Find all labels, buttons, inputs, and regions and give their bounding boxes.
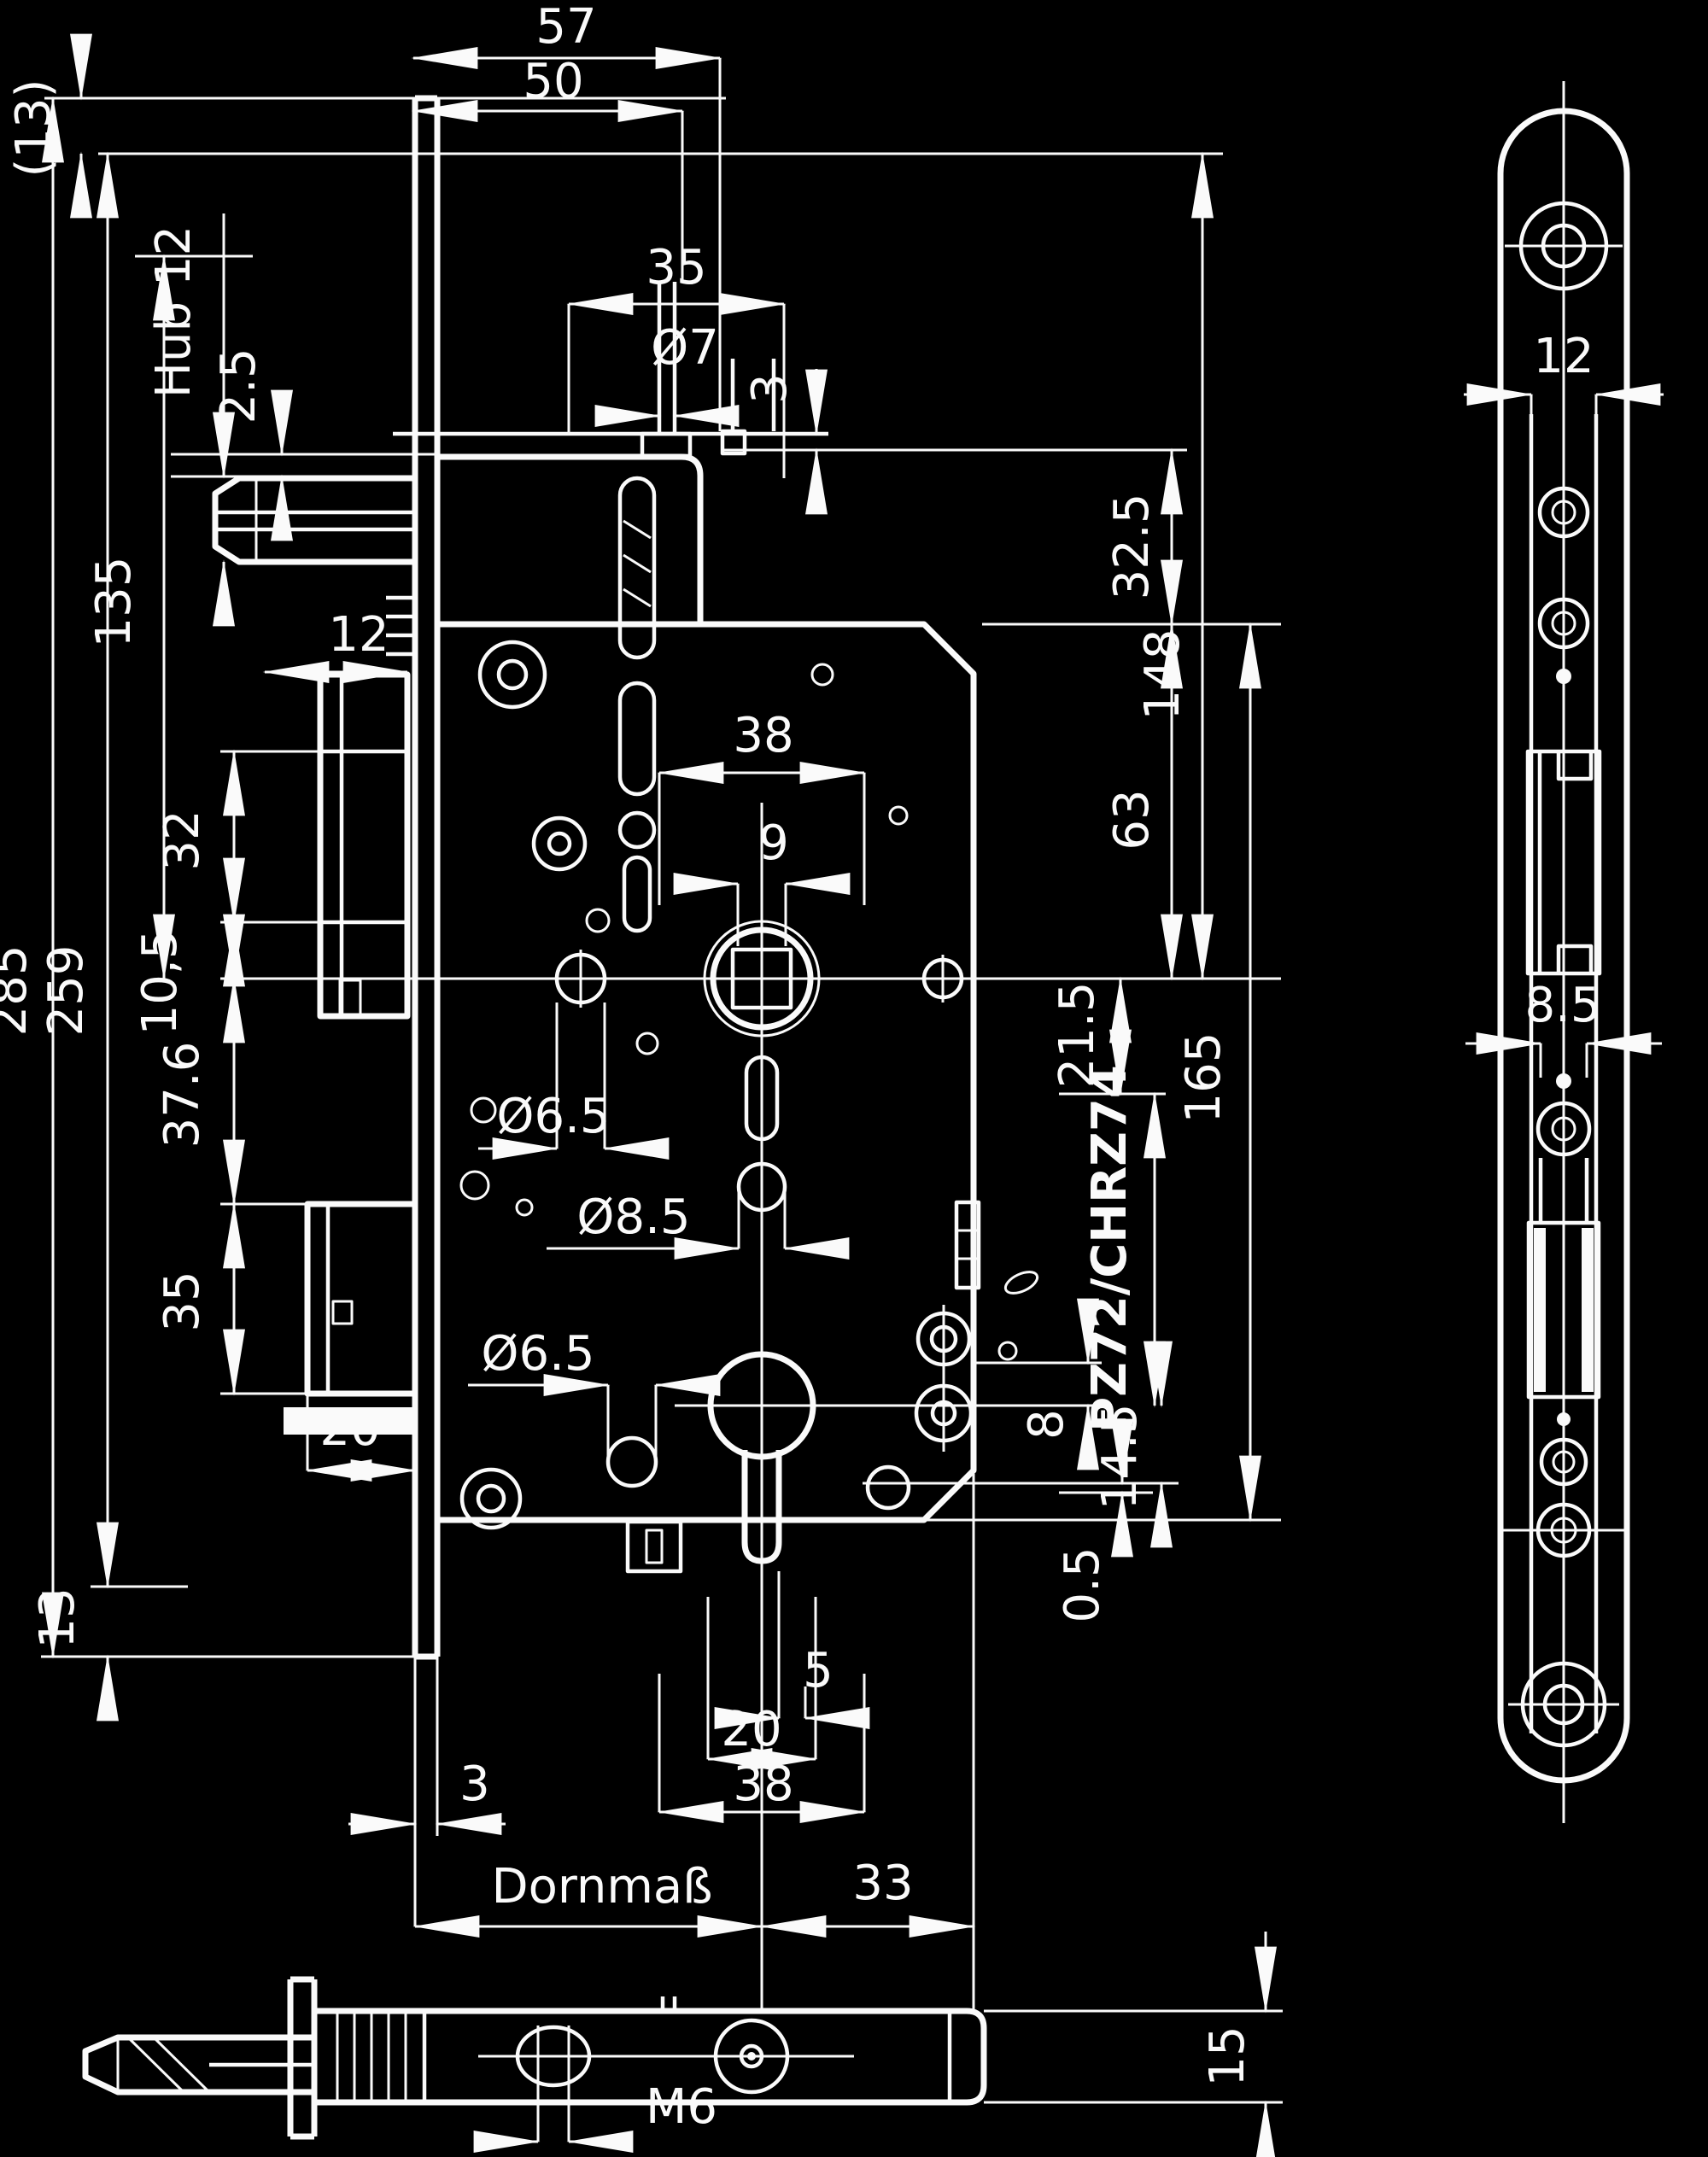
dim-10-5-label: 10,5 — [132, 929, 188, 1036]
dim-135-label: 135 — [86, 557, 142, 648]
dim-dia8-5-label: Ø8.5 — [576, 1190, 690, 1245]
dim-5-label: 5 — [803, 1643, 834, 1698]
bottom-dims — [478, 1932, 1283, 2152]
dim-20-cyl-label: 20 — [721, 1702, 781, 1757]
dim-35-top-label: 35 — [646, 240, 706, 295]
dimensions-left — [41, 44, 512, 1704]
dim-38-cyl-label: 38 — [733, 1757, 793, 1812]
spring-plate — [386, 598, 415, 654]
dim-32-label: 32 — [155, 810, 210, 870]
dim-13-top-label: (13) — [6, 79, 61, 178]
faceplate-section — [290, 1979, 314, 2137]
dim-50-label: 50 — [523, 54, 583, 109]
dim-0-5-label: 0.5 — [1055, 1546, 1110, 1622]
dim-37-6-label: 37.6 — [155, 1042, 210, 1149]
dim-pz72-label: PZ72/CHRZ74 — [1082, 1065, 1138, 1432]
dim-285-label: 285 — [0, 945, 38, 1037]
latch-bolt — [215, 478, 415, 562]
dim-dornmass-label: Dornmaß — [491, 1859, 712, 1914]
top-screw — [1505, 203, 1623, 289]
dim-259-label: 259 — [38, 945, 94, 1037]
dim-20-bolt-label: 20 — [319, 1401, 380, 1457]
dim-3-top-label: 3 — [742, 373, 798, 404]
latch-section — [85, 2037, 314, 2092]
dim-2-5-label: 2.5 — [211, 348, 266, 424]
deadbolt — [284, 1204, 415, 1435]
dim-14-5-label: 14.5 — [1092, 1404, 1148, 1511]
faceplate-edge — [415, 98, 437, 1657]
spring-column — [620, 478, 654, 931]
dim-3-stulp-label: 3 — [459, 1757, 490, 1812]
spring-hatch — [337, 2011, 424, 2102]
dim-12-plate-label: 12 — [1533, 329, 1594, 384]
dim-hub12-label: Hub 12 — [146, 225, 202, 398]
dim-12-aux-label: 12 — [328, 607, 389, 663]
dim-35-bolt-label: 35 — [155, 1271, 210, 1331]
dim-dia7-label: Ø7 — [651, 320, 719, 376]
dim-9-label: 9 — [758, 815, 789, 871]
dim-63-label: 63 — [1104, 789, 1160, 850]
dimensions-bottom — [348, 773, 974, 2011]
hole-6-5-lower — [608, 1438, 656, 1486]
dim-15-label: 15 — [1200, 2025, 1255, 2086]
case-rivets — [462, 642, 907, 1528]
dim-13-bot-label: 13 — [30, 1587, 85, 1648]
dim-165-label: 165 — [1176, 1032, 1231, 1124]
dimensions-right — [863, 154, 1281, 1539]
dim-38-top-label: 38 — [733, 708, 793, 763]
dim-8-5-plate-label: 8.5 — [1524, 978, 1600, 1033]
dim-8-label: 8 — [1019, 1409, 1074, 1440]
technical-drawing-page: 57 50 35 Ø7 3 (13) Hub 12 2.5 135 285 25… — [0, 0, 1708, 2157]
dim-m6-label: M6 — [646, 2079, 717, 2135]
dim-32-5-label: 32.5 — [1104, 494, 1160, 600]
lock-drawing-canvas: 57 50 35 Ø7 3 (13) Hub 12 2.5 135 285 25… — [0, 0, 1708, 2157]
dim-148-label: 148 — [1135, 629, 1190, 721]
dim-dia6-5b-label: Ø6.5 — [481, 1326, 594, 1382]
dim-33-label: 33 — [852, 1856, 913, 1911]
auxiliary-latch — [320, 675, 407, 1016]
dim-57-label: 57 — [535, 0, 596, 55]
dimension-labels: 57 50 35 Ø7 3 (13) Hub 12 2.5 135 285 25… — [0, 0, 1601, 2135]
dim-dia6-5a-label: Ø6.5 — [496, 1089, 610, 1144]
cylinder-screws — [628, 1202, 1040, 1571]
latch-housing — [437, 457, 700, 624]
